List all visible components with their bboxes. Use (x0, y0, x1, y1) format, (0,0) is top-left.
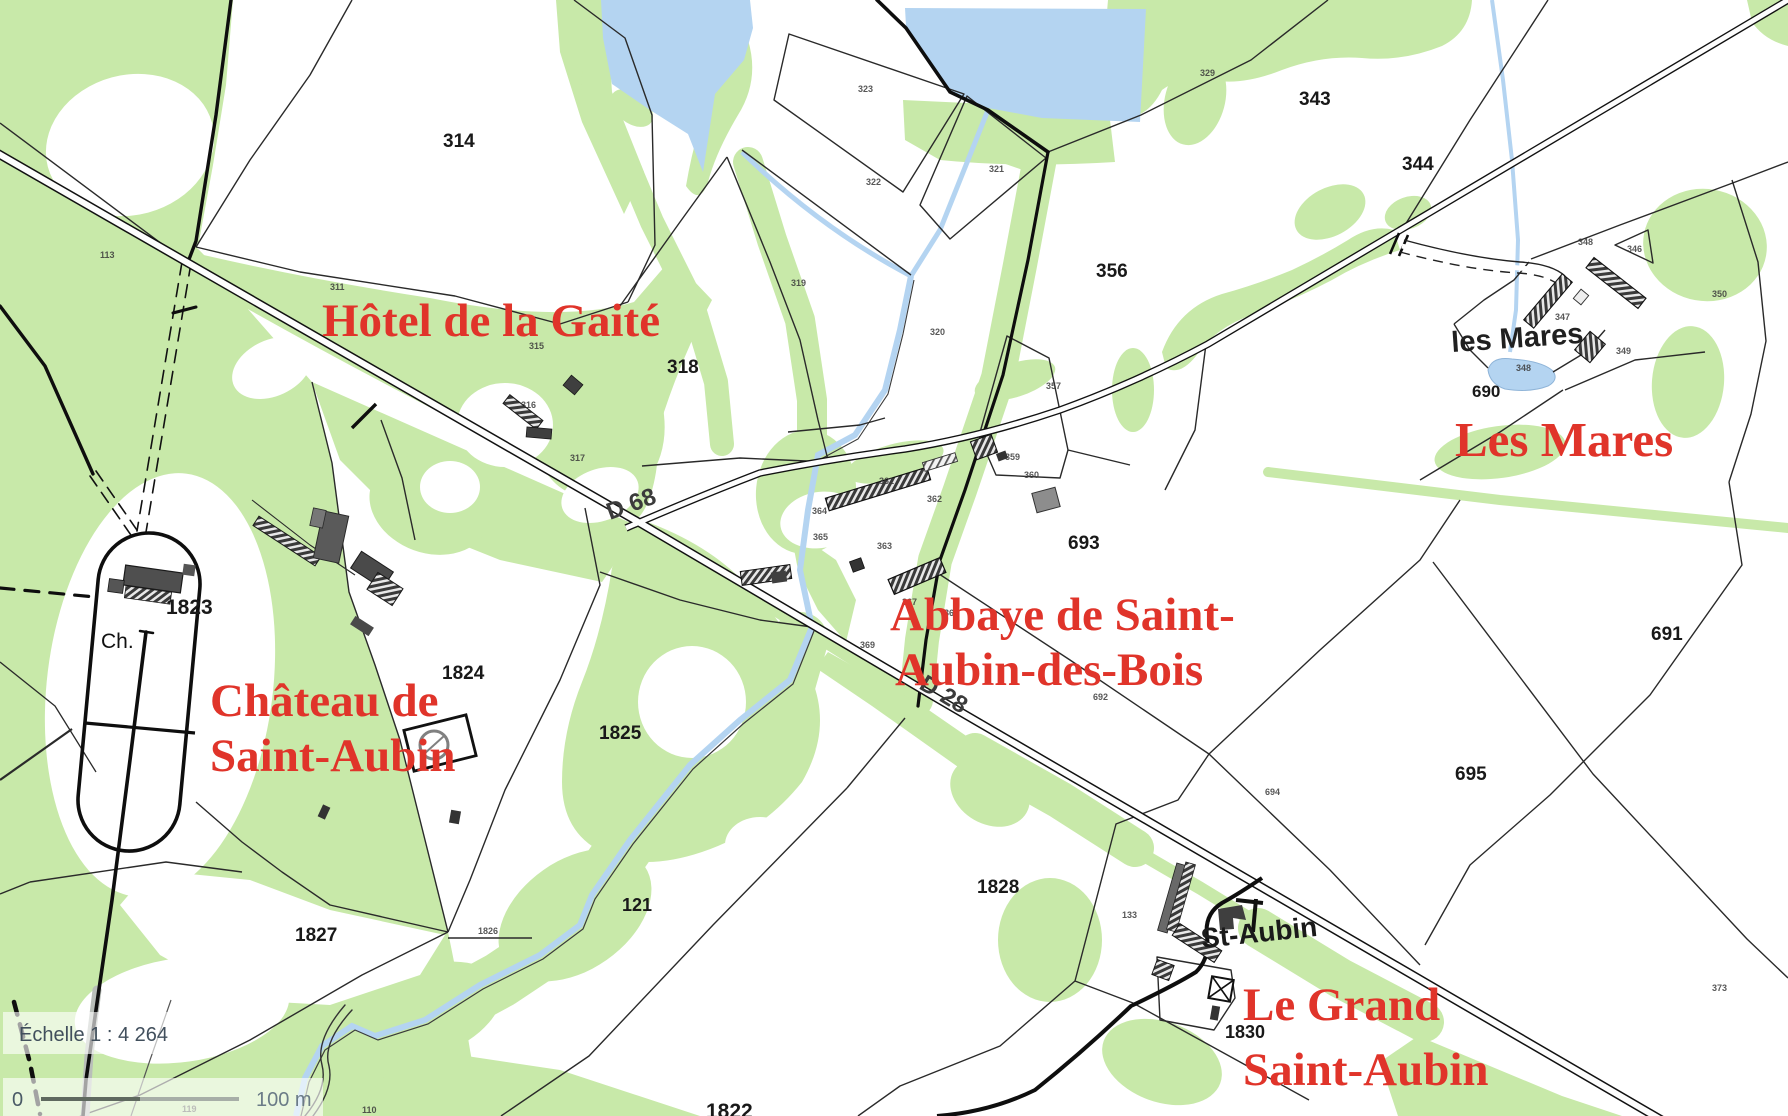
svg-text:Abbaye de Saint-: Abbaye de Saint- (890, 589, 1235, 641)
svg-text:361: 361 (879, 476, 894, 486)
svg-text:314: 314 (443, 131, 475, 152)
svg-text:1823: 1823 (166, 596, 213, 619)
svg-text:363: 363 (877, 541, 892, 551)
svg-text:691: 691 (1651, 624, 1683, 645)
svg-text:359: 359 (1005, 452, 1020, 462)
svg-text:Aubin-des-Bois: Aubin-des-Bois (895, 644, 1203, 696)
svg-text:350: 350 (1712, 289, 1727, 299)
svg-text:316: 316 (521, 400, 536, 410)
svg-text:343: 343 (1299, 89, 1331, 110)
svg-text:133: 133 (1122, 910, 1137, 920)
svg-text:1826: 1826 (478, 926, 498, 936)
svg-text:365: 365 (813, 532, 828, 542)
svg-text:1825: 1825 (599, 723, 642, 744)
svg-text:695: 695 (1455, 764, 1487, 785)
svg-text:1827: 1827 (295, 925, 337, 946)
svg-text:346: 346 (1627, 244, 1642, 254)
svg-text:113: 113 (100, 250, 115, 260)
svg-text:694: 694 (1265, 787, 1280, 797)
svg-text:356: 356 (1096, 261, 1128, 282)
svg-text:321: 321 (989, 164, 1004, 174)
svg-text:320: 320 (930, 327, 945, 337)
svg-text:Le Grand: Le Grand (1243, 979, 1440, 1031)
svg-text:690: 690 (1472, 382, 1500, 401)
svg-text:362: 362 (927, 494, 942, 504)
svg-text:1828: 1828 (977, 877, 1019, 898)
svg-text:323: 323 (858, 84, 873, 94)
svg-text:311: 311 (330, 282, 345, 292)
svg-text:373: 373 (1712, 983, 1727, 993)
svg-text:319: 319 (791, 278, 806, 288)
svg-text:1822: 1822 (706, 1100, 753, 1116)
svg-text:1824: 1824 (442, 663, 485, 684)
svg-text:329: 329 (1200, 68, 1215, 78)
svg-text:364: 364 (812, 506, 827, 516)
svg-text:322: 322 (866, 177, 881, 187)
svg-text:360: 360 (1024, 470, 1039, 480)
svg-text:Les Mares: Les Mares (1455, 412, 1673, 467)
svg-text:693: 693 (1068, 533, 1100, 554)
svg-text:349: 349 (1616, 346, 1631, 356)
svg-text:Hôtel de la Gaité: Hôtel de la Gaité (322, 295, 660, 347)
svg-text:110: 110 (362, 1105, 377, 1115)
svg-text:357: 357 (1046, 381, 1061, 391)
svg-text:318: 318 (667, 357, 699, 378)
svg-text:369: 369 (860, 640, 875, 650)
svg-text:Saint-Aubin: Saint-Aubin (1243, 1044, 1489, 1096)
svg-text:348: 348 (1578, 237, 1593, 247)
svg-text:Saint-Aubin: Saint-Aubin (210, 730, 456, 782)
svg-text:0: 0 (12, 1089, 23, 1111)
svg-text:Échelle 1 : 4 264: Échelle 1 : 4 264 (19, 1023, 168, 1046)
svg-text:100 m: 100 m (256, 1089, 312, 1111)
svg-text:348: 348 (1516, 363, 1531, 373)
svg-text:344: 344 (1402, 154, 1434, 175)
svg-text:Ch.: Ch. (101, 630, 134, 653)
svg-text:121: 121 (622, 895, 652, 915)
svg-text:317: 317 (570, 453, 585, 463)
svg-text:Château de: Château de (210, 675, 438, 727)
